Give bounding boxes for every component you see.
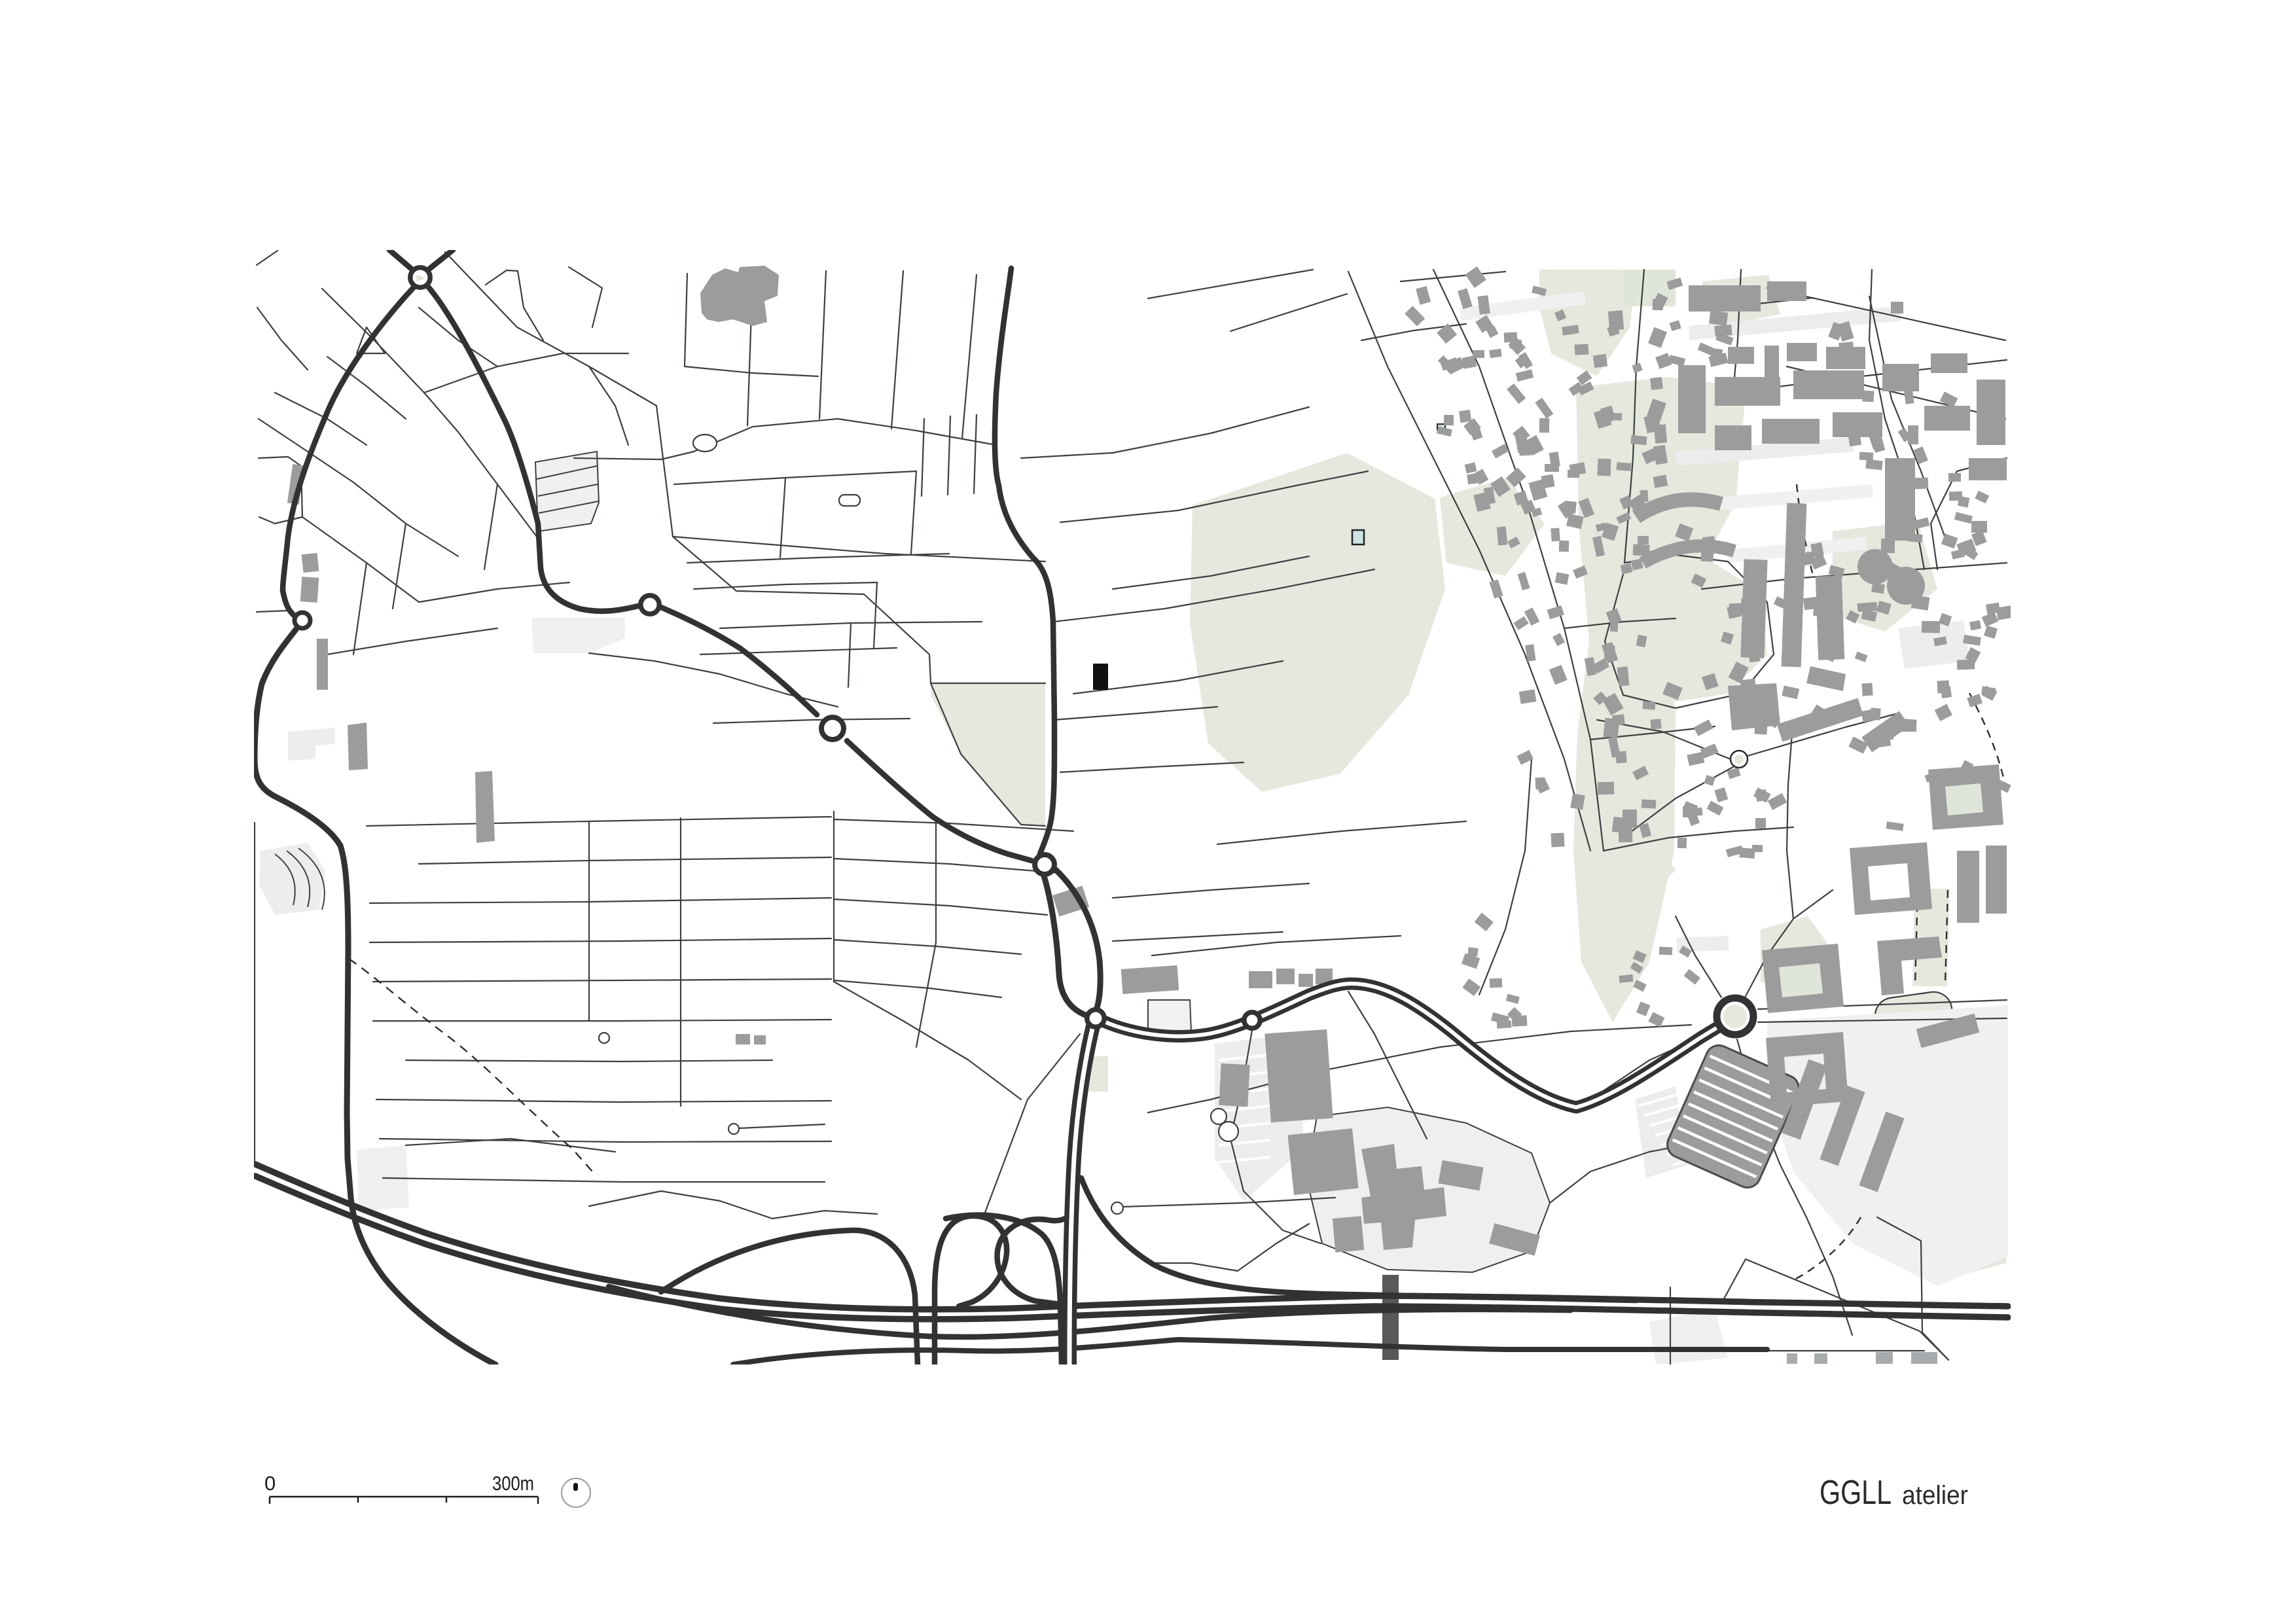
- svg-text:GGLL: GGLL: [1820, 1474, 1892, 1512]
- svg-text:300m: 300m: [492, 1472, 534, 1495]
- svg-text:0: 0: [264, 1472, 276, 1495]
- svg-text:atelier: atelier: [1902, 1481, 1968, 1510]
